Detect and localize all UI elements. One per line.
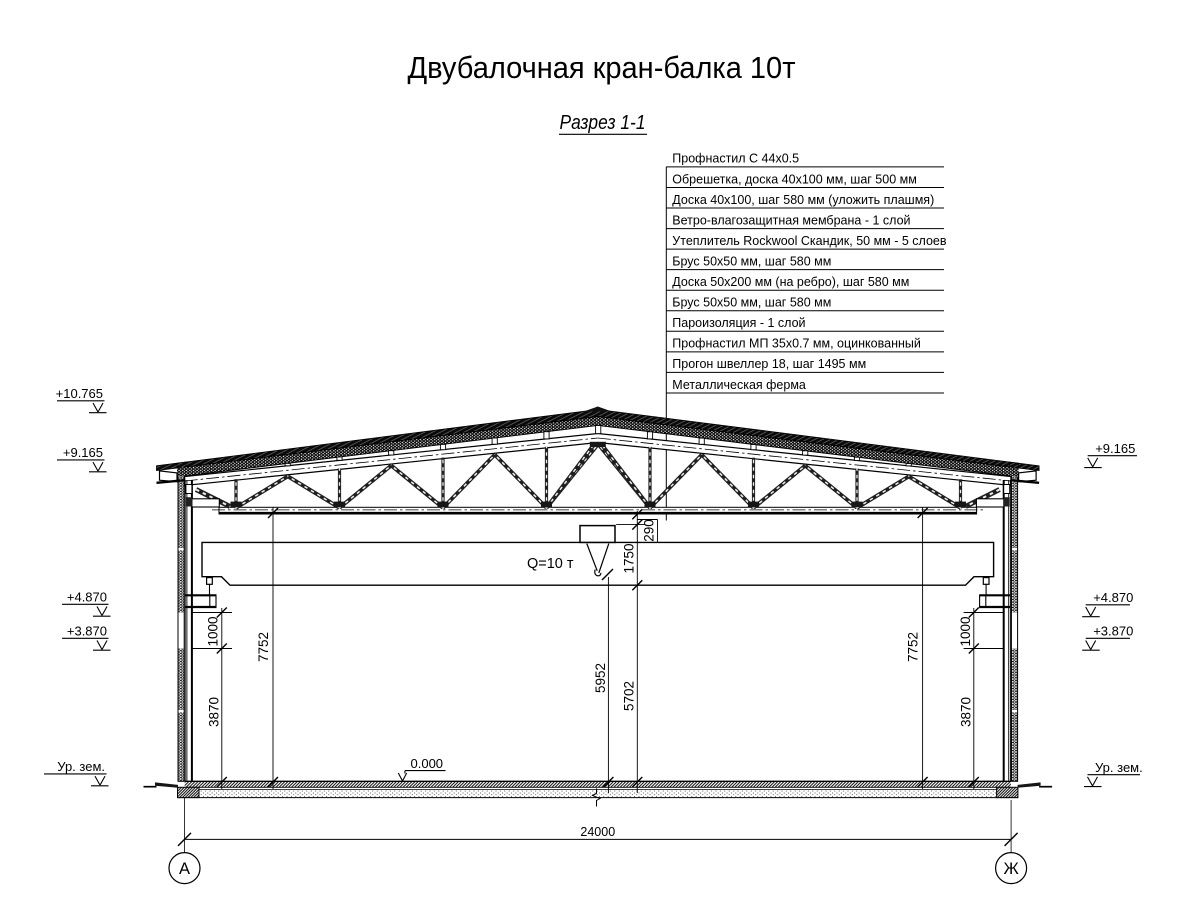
svg-text:7752: 7752 bbox=[906, 632, 921, 662]
svg-text:Металлическая ферма: Металлическая ферма bbox=[672, 378, 806, 392]
svg-text:+10.765: +10.765 bbox=[56, 386, 103, 401]
svg-text:Q=10 т: Q=10 т bbox=[527, 556, 574, 572]
svg-text:+4.870: +4.870 bbox=[67, 590, 107, 605]
svg-text:Профнастил МП 35х0.7 мм, оцинк: Профнастил МП 35х0.7 мм, оцинкованный bbox=[672, 337, 921, 351]
svg-text:3870: 3870 bbox=[206, 697, 221, 727]
svg-text:+9.165: +9.165 bbox=[1095, 441, 1135, 456]
svg-text:Ветро-влагозащитная мембрана -: Ветро-влагозащитная мембрана - 1 слой bbox=[672, 213, 910, 227]
svg-text:Двубалочная кран-балка 10т: Двубалочная кран-балка 10т bbox=[408, 50, 796, 85]
svg-text:5952: 5952 bbox=[593, 663, 608, 693]
svg-text:+9.165: +9.165 bbox=[63, 445, 103, 460]
svg-text:3870: 3870 bbox=[959, 697, 974, 727]
svg-text:+3.870: +3.870 bbox=[1093, 624, 1133, 639]
svg-text:Ур. зем.: Ур. зем. bbox=[1095, 760, 1143, 775]
svg-text:Ур. зем.: Ур. зем. bbox=[57, 759, 105, 774]
svg-text:Разрез 1-1: Разрез 1-1 bbox=[560, 112, 646, 134]
svg-text:Обрешетка, доска 40х100 мм, ша: Обрешетка, доска 40х100 мм, шаг 500 мм bbox=[672, 172, 917, 186]
svg-text:Профнастил С 44х0.5: Профнастил С 44х0.5 bbox=[672, 152, 799, 166]
svg-text:+4.870: +4.870 bbox=[1093, 590, 1133, 605]
svg-text:290: 290 bbox=[641, 519, 656, 542]
svg-text:24000: 24000 bbox=[580, 825, 615, 839]
svg-text:Брус 50х50 мм, шаг 580 мм: Брус 50х50 мм, шаг 580 мм bbox=[672, 254, 831, 268]
svg-text:1750: 1750 bbox=[622, 543, 637, 573]
svg-text:Доска 50х200 мм (на ребро), ша: Доска 50х200 мм (на ребро), шаг 580 мм bbox=[672, 275, 909, 289]
svg-text:1000: 1000 bbox=[206, 616, 221, 646]
svg-text:+3.870: +3.870 bbox=[67, 624, 107, 639]
svg-text:А: А bbox=[179, 860, 190, 878]
svg-text:Пароизоляция - 1 слой: Пароизоляция - 1 слой bbox=[672, 316, 805, 330]
svg-text:Доска 40х100, шаг 580 мм (улож: Доска 40х100, шаг 580 мм (уложить плашмя… bbox=[672, 193, 934, 207]
svg-text:Прогон швеллер 18, шаг 1495 мм: Прогон швеллер 18, шаг 1495 мм bbox=[672, 357, 866, 371]
svg-text:Утеплитель Rockwool Скандик, 5: Утеплитель Rockwool Скандик, 50 мм - 5 с… bbox=[672, 234, 947, 248]
svg-text:Брус 50х50 мм, шаг 580 мм: Брус 50х50 мм, шаг 580 мм bbox=[672, 296, 831, 310]
svg-text:1000: 1000 bbox=[958, 616, 973, 646]
svg-text:5702: 5702 bbox=[622, 681, 637, 711]
svg-text:7752: 7752 bbox=[256, 632, 271, 662]
svg-text:0.000: 0.000 bbox=[411, 756, 444, 771]
svg-text:Ж: Ж bbox=[1003, 860, 1019, 878]
